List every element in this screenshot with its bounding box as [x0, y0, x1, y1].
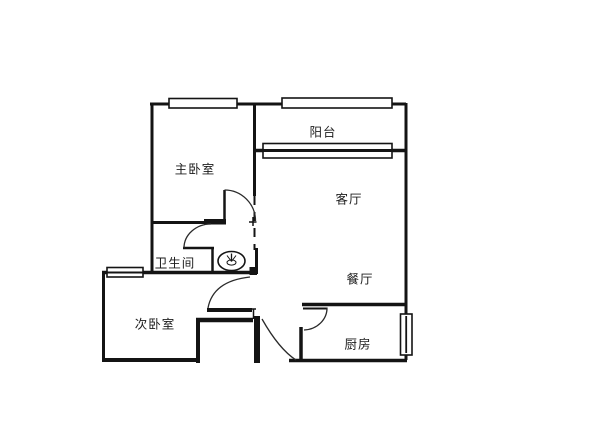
window-second-bedroom [107, 268, 143, 278]
window-balcony-inner [263, 144, 392, 159]
window-kitchen [401, 314, 413, 355]
room-label-second-bedroom: 次卧室 [135, 314, 176, 333]
room-label-living-room: 客厅 [335, 189, 362, 208]
washbasin-icon [218, 252, 245, 271]
window-balcony-top [282, 98, 392, 108]
floorplan: 阳台 主卧室 客厅 卫生间 餐厅 次卧室 厨房 [0, 0, 600, 422]
room-label-kitchen: 厨房 [344, 334, 371, 353]
room-label-balcony: 阳台 [309, 122, 336, 141]
door-master-bedroom [225, 190, 256, 222]
door-kitchen [303, 308, 327, 331]
room-label-master-bedroom: 主卧室 [175, 159, 216, 178]
floorplan-drawing [0, 0, 600, 422]
door-hallway [208, 277, 250, 308]
door-entry [262, 319, 296, 360]
room-label-dining-room: 餐厅 [346, 269, 373, 288]
door-bathroom [184, 224, 211, 248]
room-label-bathroom: 卫生间 [155, 253, 196, 272]
window-master-bedroom [169, 99, 237, 109]
